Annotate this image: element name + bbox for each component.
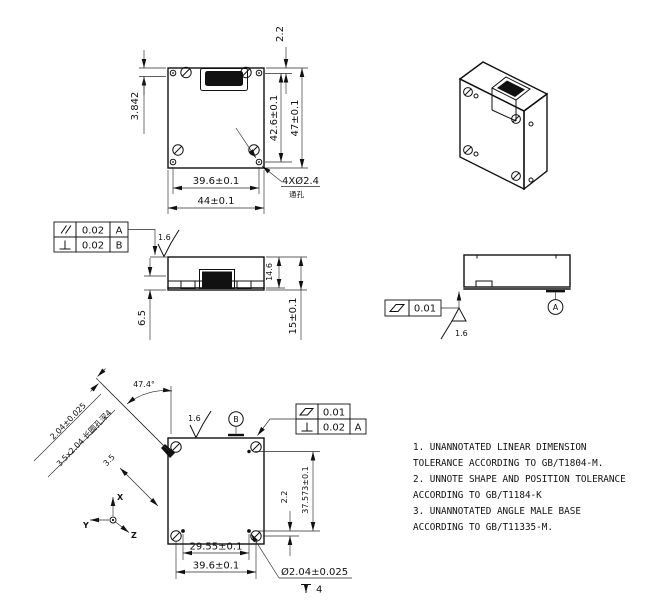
flatness-icon [390,305,404,312]
dim-angle: 47.4° [127,380,172,434]
datum-b-label: B [233,415,239,424]
note-line-4: ACCORDING TO GB/T1184-K [413,490,542,501]
front-view: 3.842 2.2 42.6±0.1 47±0.1 39.6±0.1 [130,26,320,214]
small-hole-callout: Ø2.04±0.025 4 [251,534,352,596]
dim-inner-height: 14.6 [265,263,274,281]
iso-corner-screws [464,88,533,182]
dim-2-2-bottom: 2.2 [253,491,299,556]
datum-a: A [546,291,565,314]
dim-width: 44±0.1 [197,196,234,207]
roughness-right-value: 1.6 [455,329,468,338]
datum-b: B [228,412,244,435]
dim-65: 6.5 [137,258,166,340]
bottom-outline [168,438,264,544]
dim-height: 47±0.1 [290,99,301,136]
roughness-bottom: 1.6 [188,411,211,438]
depth-icon [301,585,311,594]
hole-callout-note: 通孔 [289,189,304,199]
datum-a-label: A [553,303,559,312]
parallelism-icon [61,226,71,234]
dim-2-2-top: 2.2 [265,26,308,94]
dim-offset-top: 3.842 [130,92,141,121]
dim-bottom: 6.5 [137,310,148,326]
right-side-outline [464,255,570,287]
dim-hole-spacing-h: 39.6±0.1 [193,561,240,572]
dim-angle-value: 47.4° [133,380,155,389]
dim-146: 14.6 [265,257,285,288]
bottom-corner-screws [171,442,261,541]
note-line-2: TOLERANCE ACCORDING TO GB/T1804-M. [413,458,603,469]
dim-2955: 29.55±0.1 [183,534,249,560]
bottom-view: 2.04±0.025 3.5x2.04 长圆孔深4 47.4° 3.5 1.6 … [34,369,366,596]
side-connector [200,270,235,289]
dim-slot-offset-value: 3.5 [102,453,117,468]
fcf-side-row2-datum: B [116,241,123,252]
hole-callout-text: 4XØ2.4 [282,175,319,187]
axis-x-label: X [117,493,124,502]
right-side-foot [476,281,492,287]
dim-426: 42.6±0.1 [265,74,292,163]
fcf-side: 0.02 A 0.02 B [54,222,155,255]
fcf-side-row2-tol: 0.02 [82,241,104,252]
fcf-bottom-row2-tol: 0.02 [323,423,345,434]
iso-right-face [524,94,547,189]
axis-y-label: Y [82,521,89,530]
roughness-side-value: 1.6 [158,233,171,242]
side-view: 0.02 A 0.02 B 1.6 14.6 15±0.1 [54,222,307,340]
fcf-right: 0.01 [385,292,459,317]
note-line-6: ACCORDING TO GB/T11335-M. [413,522,553,533]
roughness-right: 1.6 [441,308,468,339]
dim-connector-offset: 2.2 [275,26,286,42]
dim-slot-offset: 3.5 [102,453,158,506]
roughness-side: 1.6 [158,230,179,257]
small-hole-callout-text: Ø2.04±0.025 [281,566,348,578]
fcf-side-row1-tol: 0.02 [82,226,104,237]
note-line-3: 2. UNNOTE SHAPE AND POSITION TOLERANCE [413,474,626,485]
right-side-view: A 0.01 1.6 [385,255,570,339]
dim-396: 39.6±0.1 [173,167,259,194]
dim-small-hole-spacing: 29.55±0.1 [190,542,243,553]
axis-z-label: Z [131,531,137,540]
flatness-icon [300,409,313,416]
isometric-view [460,62,547,189]
fcf-side-row1-datum: A [116,226,123,237]
engineering-drawing: 3.842 2.2 42.6±0.1 47±0.1 39.6±0.1 [0,0,650,606]
roughness-bottom-value: 1.6 [188,414,201,423]
fcf-bottom-row1-tol: 0.01 [323,408,345,419]
coordinate-triad-icon: X Y Z [82,493,137,540]
perpendicularity-icon [302,423,313,432]
fcf-right-tol: 0.01 [414,304,436,315]
notes-block: 1. UNANNOTATED LINEAR DIMENSION TOLERANC… [413,442,626,533]
dim-3842: 3.842 [130,50,166,134]
dim-hole-offset: 2.2 [280,491,289,504]
fcf-bottom-row2-datum: A [355,423,362,434]
dim-hole-spacing-h: 39.6±0.1 [193,176,240,187]
note-line-1: 1. UNANNOTATED LINEAR DIMENSION [413,442,587,453]
note-line-5: 3. UNANNOTATED ANGLE MALE BASE [413,506,581,517]
fcf-bottom: 0.01 0.02 A [258,404,367,436]
dim-hole-spacing-v: 42.6±0.1 [269,95,280,142]
small-hole-depth: 4 [316,585,322,596]
dim-hole-spacing-v: 37.573±0.1 [301,466,310,513]
perpendicularity-icon [60,241,71,250]
dim-total-height: 15±0.1 [288,297,299,334]
